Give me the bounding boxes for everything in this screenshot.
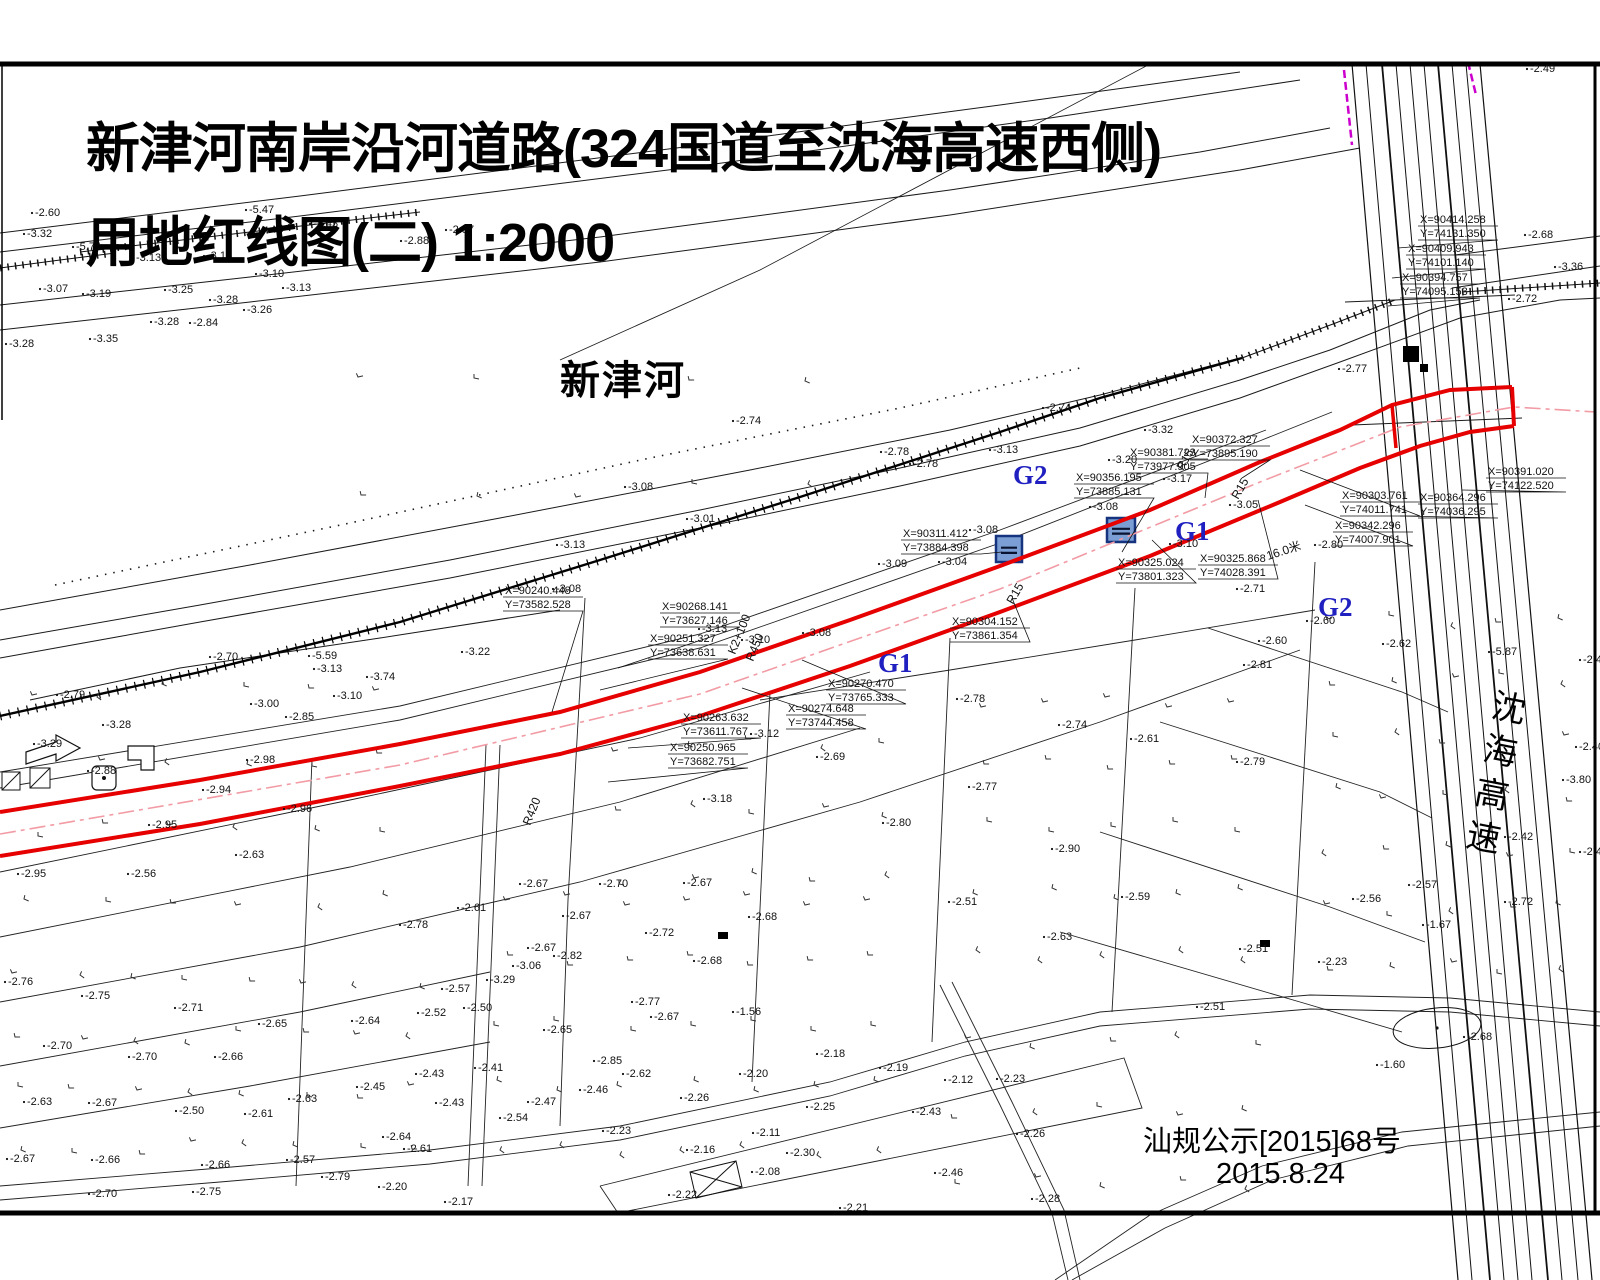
spot-elevation-value: -2.45 [1583, 654, 1600, 666]
paddy-mark-icon [627, 955, 633, 961]
spot-elevation-dot [175, 1110, 177, 1112]
spot-elevation-value: -2.94 [206, 784, 231, 796]
paddy-mark-icon [1562, 729, 1569, 736]
spot-elevation-value: -2.12 [948, 1074, 973, 1086]
paddy-mark-icon [1256, 1040, 1261, 1045]
spot-elevation-dot [43, 1045, 45, 1047]
spot-elevation-value: -2.47 [531, 1096, 556, 1108]
callout-leader [503, 611, 583, 712]
paddy-mark-icon [30, 689, 37, 696]
spot-elevation-dot [235, 854, 237, 856]
spot-elevation-value: -2.23 [1322, 956, 1347, 968]
coordinate-callout-text: X=90372.327 [1192, 434, 1258, 446]
paddy-mark-icon [615, 805, 621, 811]
spot-elevation-dot [246, 759, 248, 761]
spot-elevation-value: -3.19 [86, 288, 111, 300]
spot-elevation-value: -2.84 [193, 317, 218, 329]
paddy-mark-icon [68, 1083, 74, 1089]
spot-elevation-value: -2.78 [913, 458, 938, 470]
spot-elevation-value: -2.23 [606, 1125, 631, 1137]
spot-elevation-value: -2.19 [883, 1062, 908, 1074]
paddy-mark-icon [1176, 1109, 1183, 1116]
building-filled [1420, 364, 1428, 372]
paddy-mark-icon [885, 871, 892, 878]
spot-elevation-dot [816, 756, 818, 758]
spot-elevation-dot [189, 322, 191, 324]
spot-elevation-value: -3.08 [628, 481, 653, 493]
paddy-mark-icon [754, 1086, 760, 1092]
map-title-line1: 新津河南岸沿河道路(324国道至沈海高速西侧) [86, 104, 1161, 183]
spot-elevation-dot [457, 907, 459, 909]
red-line-end-closure [1512, 387, 1514, 426]
paddy-mark-icon [106, 897, 111, 902]
paddy-mark-icon [811, 1026, 816, 1031]
paddy-mark-icon [747, 960, 753, 966]
paddy-mark-icon [242, 1139, 249, 1146]
paddy-mark-icon [557, 1086, 563, 1092]
spot-elevation-dot [527, 1101, 529, 1103]
paddy-mark-icon [244, 682, 249, 687]
paddy-mark-icon [18, 1082, 23, 1087]
spot-elevation-dot [1376, 1064, 1378, 1066]
parcel-boundary-line [560, 598, 585, 1126]
spot-elevation-dot [599, 883, 601, 885]
spot-elevation-dot [880, 451, 882, 453]
spot-elevation-value: -2.60 [1262, 635, 1287, 647]
spot-elevation-dot [948, 901, 950, 903]
paddy-mark-icon [683, 894, 690, 901]
spot-elevation-value: -2.72 [1508, 896, 1533, 908]
spot-elevation-value: -3.00 [254, 698, 279, 710]
spot-elevation-value: -3.28 [213, 294, 238, 306]
spot-elevation-dot [286, 1159, 288, 1161]
spot-elevation-value: -2.56 [1356, 893, 1381, 905]
utility-magenta-line [1468, 62, 1476, 95]
paddy-mark-icon [1452, 671, 1459, 678]
spot-elevation-dot [1463, 1036, 1465, 1038]
spot-elevation-value: -3.29 [37, 738, 62, 750]
coordinate-callout-text: Y=73744.458 [788, 717, 854, 729]
spot-elevation-dot [1196, 1006, 1198, 1008]
coordinate-callout-text: Y=73861.354 [952, 630, 1018, 642]
paddy-mark-icon [312, 762, 317, 767]
parcel-boundary-line [1160, 722, 1432, 818]
spot-elevation-dot [72, 246, 74, 248]
spot-elevation-dot [243, 309, 245, 311]
parcel-boundary-line [482, 745, 500, 1186]
spot-elevation-dot [989, 449, 991, 451]
spot-elevation-dot [128, 1056, 130, 1058]
paddy-mark-icon [1329, 680, 1335, 686]
expressway-line [1480, 64, 1592, 1280]
paddy-mark-icon [743, 889, 750, 896]
red-line-map-sheet: X=90268.141Y=73627.146X=90251.327Y=73638… [0, 0, 1600, 1280]
coordinate-callout-text: X=90303.761 [1342, 490, 1408, 502]
spot-elevation-dot [1508, 298, 1510, 300]
spot-elevation-dot [1058, 724, 1060, 726]
spot-elevation-dot [1051, 848, 1053, 850]
spot-elevation-value: -2.30 [790, 1147, 815, 1159]
paddy-mark-icon [139, 1149, 145, 1155]
coordinate-callout-text: X=90391.020 [1488, 466, 1554, 478]
paddy-mark-icon [236, 1026, 241, 1031]
spot-elevation-value: -2.71 [1240, 583, 1265, 595]
spot-elevation-value: -3.13 [993, 444, 1018, 456]
paddy-mark-icon [361, 1143, 366, 1148]
spot-elevation-dot [1043, 936, 1045, 938]
spot-elevation-dot [1042, 407, 1044, 409]
spot-elevation-value: -2.67 [687, 877, 712, 889]
spot-elevation-value: -2.67 [654, 1011, 679, 1023]
coordinate-callout-text: Y=73611.767 [683, 726, 748, 738]
paddy-mark-icon [1336, 783, 1342, 789]
spot-elevation-dot [579, 1089, 581, 1091]
spot-elevation-value: -2.51 [1200, 1001, 1225, 1013]
paddy-mark-icon [1449, 907, 1456, 914]
spot-elevation-value: -2.08 [755, 1166, 780, 1178]
spot-elevation-value: -3.09 [882, 558, 907, 570]
spot-elevation-dot [258, 1023, 260, 1025]
spot-elevation-dot [1169, 543, 1171, 545]
paddy-mark-icon [740, 1141, 747, 1148]
spot-elevation-dot [23, 1101, 25, 1103]
spot-elevation-dot [127, 873, 129, 875]
spot-elevation-value: -2.88 [91, 765, 116, 777]
paddy-mark-icon [1097, 1102, 1102, 1107]
parcel-boundary-line [1060, 932, 1402, 1032]
coordinate-callout-text: X=90304.152 [952, 616, 1018, 628]
spot-elevation-value: -2.61 [407, 1143, 432, 1155]
spot-elevation-value: -2.67 [566, 910, 591, 922]
spot-elevation-value: -3.28 [9, 338, 34, 350]
spot-elevation-dot [556, 544, 558, 546]
paddy-mark-icon [1100, 1182, 1106, 1188]
spot-elevation-value: -3.28 [106, 719, 131, 731]
paddy-mark-icon [973, 889, 979, 895]
paddy-mark-icon [809, 876, 815, 882]
paddy-mark-icon [1333, 732, 1338, 737]
spot-elevation-dot [968, 786, 970, 788]
spot-elevation-value: -2.63 [239, 849, 264, 861]
paddy-mark-icon [182, 975, 187, 980]
spot-elevation-dot [1031, 1198, 1033, 1200]
spot-elevation-value: -2.75 [196, 1186, 221, 1198]
paddy-mark-icon [1033, 1108, 1040, 1115]
coordinate-callout-text: X=90250.965 [670, 742, 736, 754]
spot-elevation-value: -2.78 [960, 693, 985, 705]
spot-elevation-value: -2.23 [1000, 1073, 1025, 1085]
spot-elevation-value: -2.78 [884, 446, 909, 458]
spot-elevation-dot [512, 965, 514, 967]
spot-elevation-value: -2.40 [1579, 741, 1600, 753]
spot-elevation-dot [148, 824, 150, 826]
spot-elevation-value: -2.65 [547, 1024, 572, 1036]
spot-elevation-value: -2.28 [1035, 1193, 1060, 1205]
spot-elevation-value: -2.20 [743, 1068, 768, 1080]
spot-elevation-dot [5, 343, 7, 345]
coordinate-callout-text: X=90325.868 [1200, 553, 1266, 565]
map-canvas: X=90268.141Y=73627.146X=90251.327Y=73638… [0, 0, 1600, 1280]
spot-elevation-dot [624, 486, 626, 488]
spot-elevation-dot [1422, 924, 1424, 926]
spot-elevation-value: -3.13 [286, 282, 311, 294]
paddy-mark-icon [249, 976, 255, 982]
coordinate-callout-text: Y=73801.323 [1118, 571, 1184, 583]
spot-elevation-value: -2.67 [531, 942, 556, 954]
curve-radius-label: R15 [1228, 475, 1251, 501]
spot-elevation-value: -2.80 [1318, 539, 1343, 551]
spot-elevation-dot [1504, 901, 1506, 903]
spot-elevation-dot [150, 321, 152, 323]
coordinate-callout-text: Y=74095.153 [1402, 286, 1468, 298]
paddy-mark-icon [817, 1151, 824, 1158]
coordinate-callout-text: Y=73765.333 [828, 692, 894, 704]
paddy-mark-icon [1235, 827, 1240, 832]
paddy-mark-icon [102, 818, 108, 824]
spot-elevation-dot [164, 289, 166, 291]
spot-elevation-dot [909, 463, 911, 465]
spot-elevation-value: -2.98 [250, 754, 275, 766]
spot-elevation-value: -2.42 [1508, 831, 1533, 843]
paddy-mark-icon [1107, 764, 1113, 770]
spot-elevation-dot [698, 628, 700, 630]
spot-elevation-dot [668, 1194, 670, 1196]
spot-elevation-value: -2.25 [810, 1101, 835, 1113]
spot-elevation-value: -3.13 [560, 539, 585, 551]
spot-elevation-dot [435, 1102, 437, 1104]
spot-elevation-value: -2.11 [756, 1127, 780, 1139]
spot-elevation-value: -3.13 [317, 663, 342, 675]
spot-elevation-value: -3.20 [1112, 454, 1137, 466]
approval-stamp-date: 2015.8.24 [1216, 1158, 1345, 1191]
spot-elevation-dot [631, 1001, 633, 1003]
parcel-code-label-g1: G1 [1175, 516, 1210, 547]
spot-elevation-dot [732, 420, 734, 422]
paddy-mark-icon [357, 1093, 363, 1099]
spot-elevation-value: -3.32 [27, 228, 52, 240]
spot-elevation-value: -3.01 [690, 513, 715, 525]
paddy-mark-icon [1392, 677, 1398, 683]
paddy-mark-icon [507, 950, 513, 956]
spot-elevation-dot [209, 656, 211, 658]
coordinate-callout-text: X=90325.024 [1118, 557, 1184, 569]
spot-elevation-value: -5.59 [312, 650, 337, 662]
spot-elevation-dot [1236, 761, 1238, 763]
spot-elevation-value: -2.59 [1125, 891, 1150, 903]
spot-elevation-value: -2.66 [95, 1154, 120, 1166]
spot-elevation-value: -3.80 [1566, 774, 1591, 786]
river-bank-line [1352, 418, 1522, 425]
paddy-mark-icon [623, 899, 630, 906]
spot-elevation-dot [288, 1098, 290, 1100]
paddy-mark-icon [617, 1081, 623, 1087]
spot-elevation-dot [244, 1113, 246, 1115]
spot-elevation-value: -2.63 [27, 1096, 52, 1108]
spot-elevation-dot [752, 1132, 754, 1134]
paddy-mark-icon [863, 894, 870, 901]
spot-elevation-dot [683, 882, 685, 884]
spot-elevation-dot [356, 1086, 358, 1088]
paddy-mark-icon [877, 1146, 884, 1153]
paddy-mark-icon [1169, 759, 1175, 765]
paddy-mark-icon [680, 1146, 687, 1153]
paddy-mark-icon [352, 981, 359, 988]
spot-elevation-dot [174, 1007, 176, 1009]
spot-elevation-value: -2.69 [820, 751, 845, 763]
spot-elevation-value: -3.26 [247, 304, 272, 316]
spot-elevation-dot [912, 1111, 914, 1113]
spot-elevation-dot [802, 632, 804, 634]
spot-elevation-value: -2.72 [649, 927, 674, 939]
spot-elevation-dot [969, 529, 971, 531]
paddy-mark-icon [871, 1021, 876, 1026]
paddy-mark-icon [372, 684, 379, 691]
spot-elevation-value: -3.29 [490, 974, 515, 986]
paddy-mark-icon [1227, 696, 1234, 703]
paddy-mark-icon [360, 490, 366, 496]
spot-elevation-dot [192, 1191, 194, 1193]
paddy-mark-icon [1389, 611, 1394, 616]
paddy-mark-icon [497, 1076, 503, 1082]
paddy-mark-icon [1451, 622, 1458, 629]
spot-elevation-value: -3.13 [702, 623, 727, 635]
parcel-boundary-line [296, 758, 312, 1186]
spot-elevation-value: -3.18 [707, 793, 732, 805]
paddy-mark-icon [1495, 617, 1501, 623]
paddy-mark-icon [1038, 956, 1045, 963]
paddy-mark-icon [10, 967, 17, 974]
paddy-mark-icon [1114, 894, 1120, 900]
spot-elevation-value: -2.51 [952, 896, 977, 908]
spot-elevation-dot [366, 676, 368, 678]
spot-elevation-value: -1.60 [1380, 1059, 1405, 1071]
spot-elevation-dot [1338, 368, 1340, 370]
spot-elevation-value: -2.79 [325, 1171, 350, 1183]
spot-elevation-dot [645, 932, 647, 934]
paddy-mark-icon [1180, 1175, 1186, 1181]
spot-elevation-value: -2.22 [672, 1189, 697, 1201]
spot-elevation-value: -2.54 [503, 1112, 528, 1124]
spot-elevation-value: -3.05 [1233, 499, 1258, 511]
spot-elevation-dot [622, 1073, 624, 1075]
spot-elevation-dot [882, 822, 884, 824]
curve-radius-label: 16.0米 [1265, 539, 1303, 563]
paddy-mark-icon [1052, 884, 1058, 890]
coordinate-callout-text: X=90274.648 [788, 703, 854, 715]
spot-elevation-dot [806, 1106, 808, 1108]
parcel-boundary-line [0, 972, 490, 1066]
spot-elevation-dot [461, 651, 463, 653]
paddy-mark-icon [1030, 1043, 1036, 1049]
spot-elevation-value: -2.77 [972, 781, 997, 793]
spot-elevation-value: -2.68 [752, 911, 777, 923]
parcel-boundary-line [0, 1009, 1600, 1200]
spot-elevation-dot [333, 695, 335, 697]
spot-elevation-value: -2.80 [886, 817, 911, 829]
spot-elevation-dot [82, 293, 84, 295]
spot-elevation-dot [474, 1067, 476, 1069]
paddy-mark-icon [353, 1028, 360, 1035]
paddy-mark-icon [1049, 827, 1054, 832]
parcel-boundary-line [1100, 832, 1425, 942]
paddy-mark-icon [1566, 796, 1572, 802]
building-l-shape [128, 746, 154, 770]
spot-elevation-value: -3.10 [337, 690, 362, 702]
paddy-mark-icon [14, 1032, 20, 1038]
paddy-mark-icon [500, 1146, 507, 1153]
spot-elevation-dot [1488, 651, 1490, 653]
spot-elevation-dot [1144, 429, 1146, 431]
paddy-mark-icon [964, 1032, 971, 1039]
coordinate-callout-text: X=90342.296 [1335, 520, 1401, 532]
spot-elevation-dot [1016, 1133, 1018, 1135]
spot-elevation-dot [680, 1097, 682, 1099]
coordinate-callout-text: X=90263.632 [683, 712, 749, 724]
spot-elevation-value: -2.70 [92, 1188, 117, 1200]
paddy-mark-icon [1100, 951, 1107, 958]
paddy-mark-icon [752, 868, 758, 874]
spot-elevation-value: -2.70 [213, 651, 238, 663]
parcel-code-label-g2: G2 [1318, 592, 1353, 623]
spot-elevation-value: -2.79 [1240, 756, 1265, 768]
spot-elevation-dot [308, 655, 310, 657]
spot-elevation-dot [739, 1073, 741, 1075]
paddy-mark-icon [1323, 898, 1330, 905]
paddy-mark-icon [1558, 614, 1564, 620]
spot-elevation-value: -2.41 [478, 1062, 503, 1074]
coordinate-callout-text: Y=74011.741 [1342, 504, 1407, 516]
paddy-mark-icon [1570, 848, 1575, 853]
spot-elevation-dot [1243, 664, 1245, 666]
spot-elevation-value: -2.57 [1412, 879, 1437, 891]
paddy-mark-icon [1322, 849, 1329, 856]
paddy-mark-icon [1165, 701, 1172, 708]
spot-elevation-value: -2.50 [467, 1002, 492, 1014]
paddy-mark-icon [688, 375, 694, 381]
spot-elevation-dot [441, 988, 443, 990]
spot-elevation-value: -2.61 [248, 1108, 273, 1120]
spot-elevation-value: -2.49 [1530, 63, 1555, 75]
spot-elevation-dot [6, 1158, 8, 1160]
building-x-mark [690, 1161, 742, 1198]
spot-elevation-value: -2.66 [218, 1051, 243, 1063]
spot-elevation-dot [1562, 779, 1564, 781]
paddy-mark-icon [303, 1027, 309, 1033]
paddy-mark-icon [188, 1088, 195, 1095]
spot-elevation-dot [750, 733, 752, 735]
spot-elevation-dot [102, 724, 104, 726]
spot-elevation-value: -2.61 [461, 902, 486, 914]
spot-elevation-dot [1526, 68, 1528, 70]
coordinate-callout-text: X=90268.141 [662, 601, 728, 613]
paddy-mark-icon [380, 827, 385, 832]
spot-elevation-value: -2.95 [152, 819, 177, 831]
spot-elevation-value: -2.70 [132, 1051, 157, 1063]
building-filled [718, 932, 728, 939]
spot-elevation-value: -2.68 [1467, 1031, 1492, 1043]
spot-elevation-value: -2.63 [292, 1093, 317, 1105]
spot-elevation-value: -2.63 [1047, 931, 1072, 943]
paddy-mark-icon [1045, 754, 1051, 760]
spot-elevation-dot [703, 798, 705, 800]
spot-elevation-value: -2.79 [60, 689, 85, 701]
paddy-mark-icon [1561, 680, 1568, 687]
spot-elevation-dot [285, 716, 287, 718]
spot-elevation-dot [1236, 588, 1238, 590]
coordinate-callout-text: Y=74036.295 [1420, 506, 1486, 518]
paddy-mark-icon [1383, 844, 1389, 850]
paddy-mark-icon [308, 683, 314, 689]
